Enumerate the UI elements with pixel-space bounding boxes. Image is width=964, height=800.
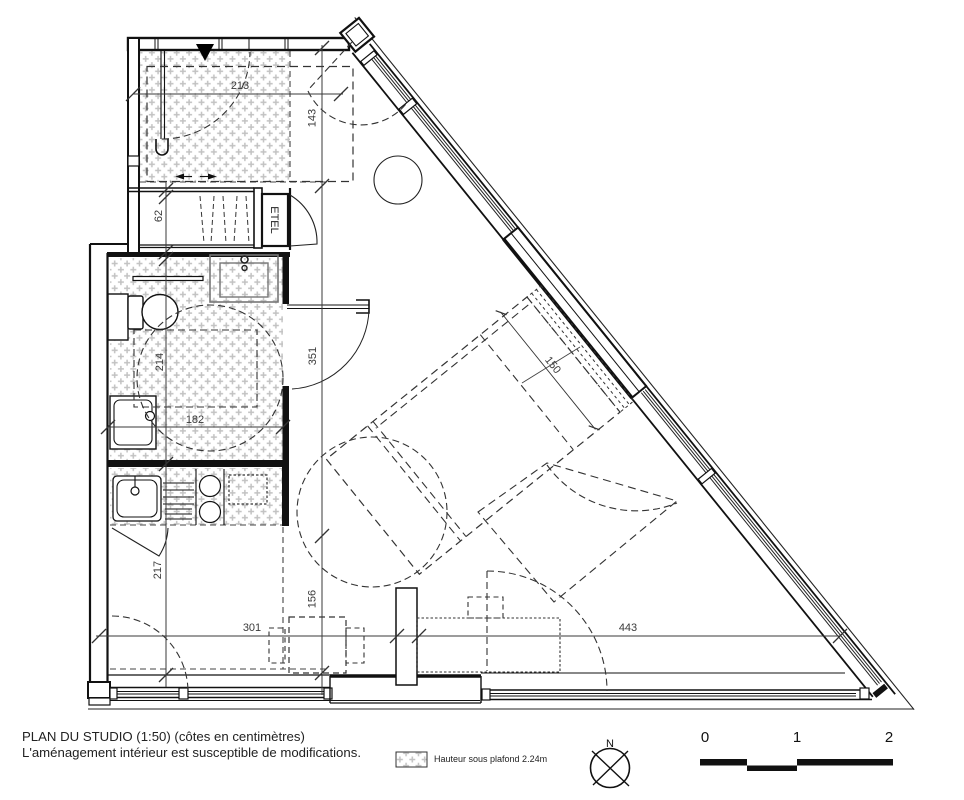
svg-text:ETEL: ETEL: [268, 206, 280, 234]
svg-text:2: 2: [885, 729, 893, 746]
svg-text:301: 301: [243, 622, 261, 634]
svg-text:443: 443: [619, 622, 637, 634]
svg-text:182: 182: [186, 414, 204, 426]
svg-text:217: 217: [152, 561, 164, 579]
svg-text:0: 0: [701, 729, 709, 746]
svg-text:L'aménagement intérieur est su: L'aménagement intérieur est susceptible …: [22, 745, 361, 760]
svg-text:62: 62: [153, 210, 165, 222]
svg-text:N: N: [606, 738, 614, 750]
svg-text:1: 1: [793, 729, 801, 746]
svg-text:214: 214: [154, 353, 166, 371]
svg-text:351: 351: [307, 347, 319, 365]
svg-text:Hauteur sous plafond 2.24m: Hauteur sous plafond 2.24m: [434, 754, 547, 764]
svg-text:156: 156: [307, 590, 319, 608]
svg-text:143: 143: [307, 109, 319, 127]
svg-text:PLAN DU STUDIO (1:50) (côtes e: PLAN DU STUDIO (1:50) (côtes en centimèt…: [22, 729, 305, 744]
svg-text:213: 213: [231, 80, 249, 92]
